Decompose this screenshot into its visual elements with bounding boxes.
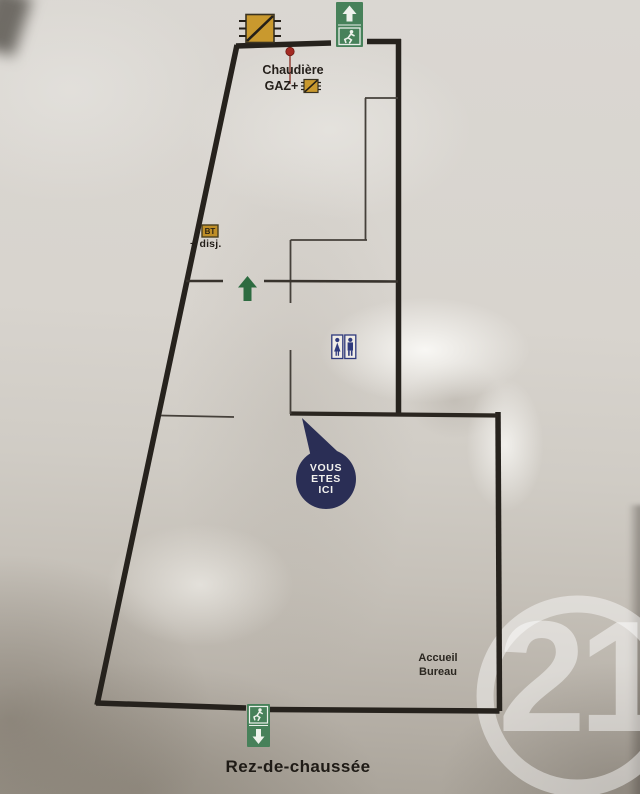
toilets-icon	[331, 334, 357, 360]
you-are-here-badge: VOUS ETES ICI	[296, 449, 356, 509]
reception-label-line2: Bureau	[412, 665, 464, 679]
exit-down-sign-icon	[247, 704, 270, 747]
bt-breaker-icon: BT	[201, 224, 219, 238]
interior-walls	[161, 98, 398, 417]
floor-plan-photo: Chaudière GAZ+ BT + disj.	[0, 0, 640, 794]
you-are-here-line3: ICI	[318, 485, 333, 496]
you-are-here-line2: ETES	[311, 474, 341, 485]
toilet-block-wall	[290, 414, 498, 416]
breaker-label-text: + disj.	[190, 238, 250, 250]
up-arrow-icon	[237, 275, 258, 302]
reception-label: Accueil Bureau	[412, 651, 464, 679]
boiler-label: Chaudière GAZ+	[252, 63, 334, 95]
breaker-label: BT + disj.	[190, 224, 250, 250]
century21-logo-text: 21	[498, 598, 640, 756]
bt-box-text: BT	[205, 227, 216, 236]
floor-title: Rez-de-chaussée	[182, 757, 414, 777]
reception-label-line1: Accueil	[412, 651, 464, 665]
exit-up-sign-icon	[336, 2, 363, 47]
boiler-label-line2: GAZ+	[265, 79, 299, 94]
electrical-device-icon	[238, 11, 282, 46]
you-are-here-line1: VOUS	[310, 463, 342, 474]
boiler-label-line1: Chaudière	[252, 63, 334, 78]
corridor-wall	[186, 281, 398, 282]
electrical-device-icon	[301, 78, 321, 95]
outer-walls	[96, 39, 500, 711]
